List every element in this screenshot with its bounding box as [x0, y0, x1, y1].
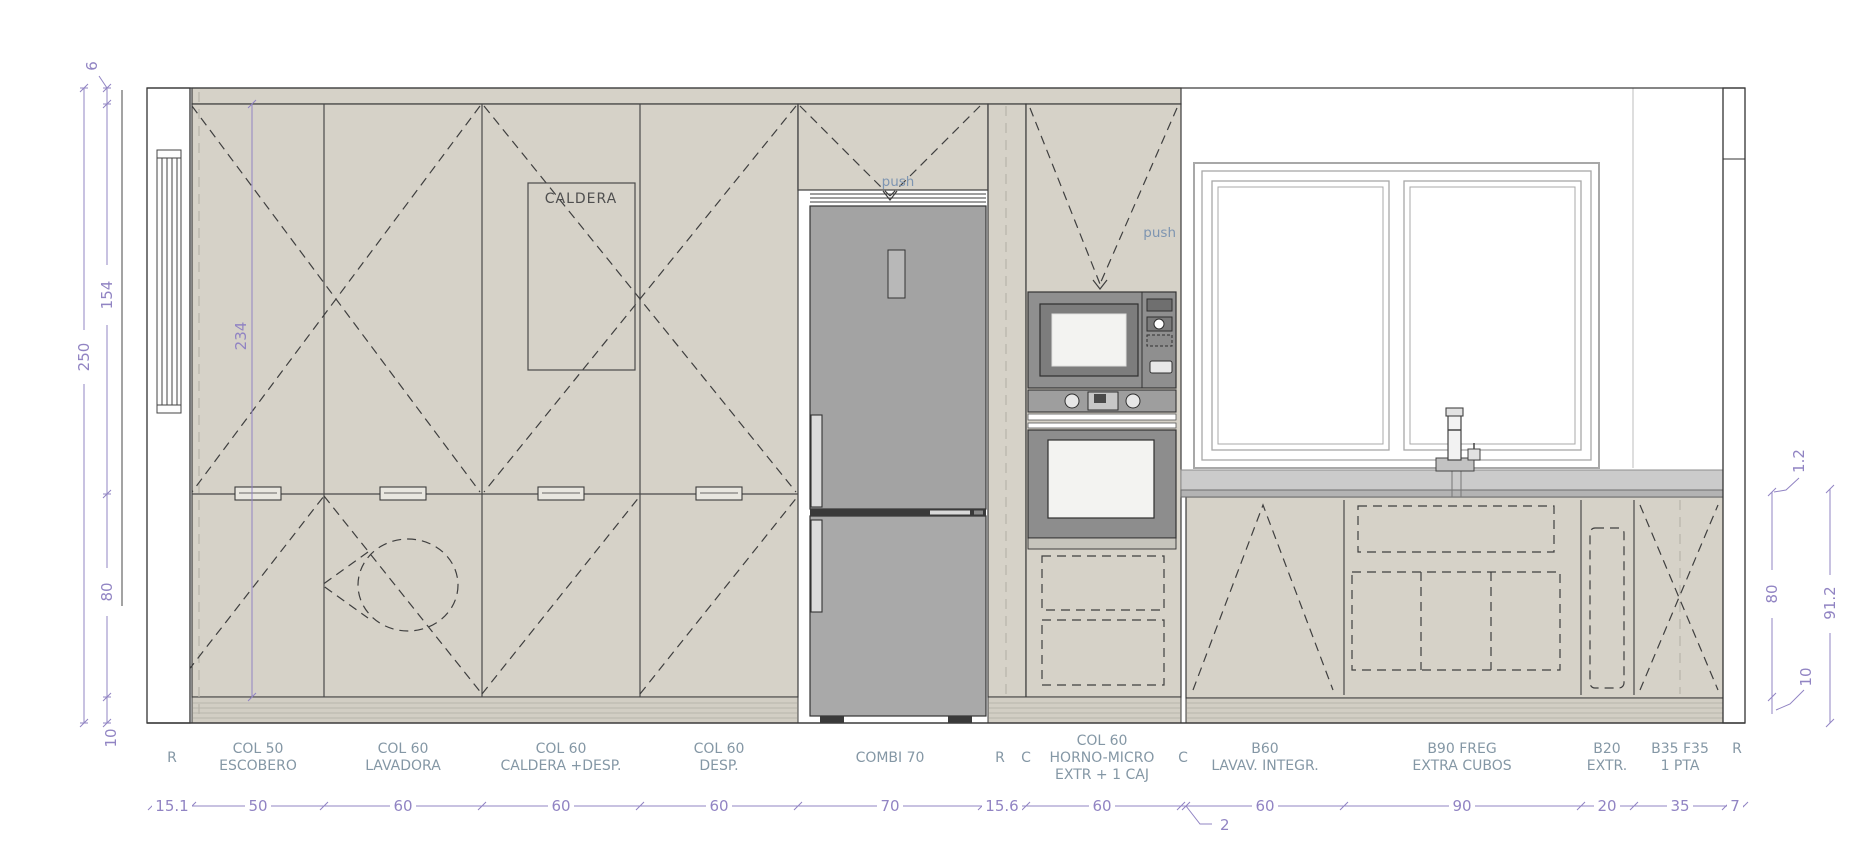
dim-w-4: 60 [709, 797, 728, 815]
dim-w-2: 60 [393, 797, 412, 815]
dim-10-left: 10 [102, 728, 120, 747]
dim-91-2: 91.2 [1821, 586, 1839, 619]
unit-label-horno-3: EXTR + 1 CAJ [1055, 767, 1149, 783]
unit-label-b35-1: B35 F35 [1651, 741, 1709, 757]
oven-window [1048, 440, 1154, 518]
window [1194, 163, 1599, 468]
unit-label-b90-1: B90 FREG [1427, 741, 1496, 757]
dim-w-3: 60 [551, 797, 570, 815]
kitchen-elevation-drawing: CALDERA push push [0, 0, 1872, 854]
fridge-handle-lower [811, 520, 822, 612]
dim-6-leader [99, 76, 107, 88]
tall-units-body [192, 104, 798, 697]
radiator [157, 150, 181, 413]
right-wall-section [1723, 88, 1745, 723]
dim-154: 154 [98, 281, 116, 310]
dim-234: 234 [232, 322, 250, 351]
caldera-label: CALDERA [545, 191, 618, 207]
dim-w-0: 15.1 [155, 797, 188, 815]
unit-labels: R COL 50 ESCOBERO COL 60 LAVADORA COL 60… [167, 733, 1742, 783]
unit-label-lavadora-1: COL 60 [378, 741, 429, 757]
unit-label-r1: R [167, 750, 177, 766]
unit-label-caldera-1: COL 60 [536, 741, 587, 757]
unit-label-horno-1: COL 60 [1077, 733, 1128, 749]
dim-80-left: 80 [98, 582, 116, 601]
dim-w-9: 60 [1255, 797, 1274, 815]
microwave-window [1052, 314, 1126, 366]
push-label-micro: push [1143, 225, 1176, 241]
unit-label-c1: C [1021, 750, 1031, 766]
oven-knob-left [1065, 394, 1079, 408]
fridge: push [810, 174, 986, 723]
unit-label-col50-1: COL 50 [233, 741, 284, 757]
fridge-display [888, 250, 905, 298]
dim-w-5: 70 [880, 797, 899, 815]
dim-w-10: 90 [1452, 797, 1471, 815]
dim-w-12: 35 [1670, 797, 1689, 815]
dim-10-right: 10 [1797, 667, 1815, 686]
dim-10r-leader [1776, 690, 1804, 710]
door-handle [696, 487, 742, 500]
dim-12-leader [1774, 478, 1799, 492]
dim-w-1: 50 [248, 797, 267, 815]
base-units-body [1186, 497, 1726, 698]
faucet-column [1448, 412, 1461, 460]
unit-label-b60-1: B60 [1251, 741, 1278, 757]
unit-label-caldera-2: CALDERA +DESP. [501, 758, 622, 774]
dim-w-8: 2 [1220, 816, 1230, 834]
unit-label-lavadora-2: LAVADORA [365, 758, 441, 774]
dim-1-2: 1.2 [1790, 449, 1808, 473]
microwave-dial [1154, 319, 1164, 329]
fridge-foot [948, 716, 972, 723]
dim-2-leader [1186, 806, 1212, 824]
unit-label-desp-2: DESP. [699, 758, 738, 774]
fridge-handle-upper [811, 415, 822, 507]
filler-right-of-fridge [988, 104, 1026, 697]
elevation-canvas: CALDERA push push [0, 0, 1872, 854]
unit-label-col50-2: ESCOBERO [219, 758, 297, 774]
microwave-buttons [1147, 335, 1172, 346]
oven-bottom-trim [1028, 538, 1176, 549]
dim-w-11: 20 [1597, 797, 1616, 815]
unit-label-b35-2: 1 PTA [1661, 758, 1700, 774]
unit-label-desp-1: COL 60 [694, 741, 745, 757]
unit-label-r3: R [1732, 741, 1742, 757]
microwave-handle [1150, 361, 1172, 373]
door-handle [380, 487, 426, 500]
dim-250: 250 [75, 343, 93, 372]
fridge-lower-door [810, 516, 986, 716]
unit-label-b90-2: EXTRA CUBOS [1412, 758, 1511, 774]
dim-80-right: 80 [1763, 584, 1781, 603]
dim-w-13: 7 [1730, 797, 1740, 815]
faucet-cap [1446, 408, 1463, 416]
oven-knob-right [1126, 394, 1140, 408]
dim-w-7: 60 [1092, 797, 1111, 815]
dim-6: 6 [83, 61, 101, 71]
door-handle [538, 487, 584, 500]
unit-label-horno-2: HORNO-MICRO [1050, 750, 1155, 766]
unit-label-b60-2: LAVAV. INTEGR. [1211, 758, 1318, 774]
unit-label-combi: COMBI 70 [856, 750, 925, 766]
faucet-lever [1468, 449, 1480, 460]
fridge-vent-slats [810, 190, 986, 202]
fridge-foot [820, 716, 844, 723]
unit-label-b20-2: EXTR. [1587, 758, 1627, 774]
door-handle [235, 487, 281, 500]
top-filler-panel [192, 88, 1181, 104]
unit-label-r2: R [995, 750, 1005, 766]
unit-label-b20-1: B20 [1593, 741, 1620, 757]
microwave-display [1147, 299, 1172, 311]
push-label-fridge: push [882, 174, 915, 190]
dim-w-6: 15.6 [985, 797, 1018, 815]
unit-label-c2: C [1178, 750, 1188, 766]
